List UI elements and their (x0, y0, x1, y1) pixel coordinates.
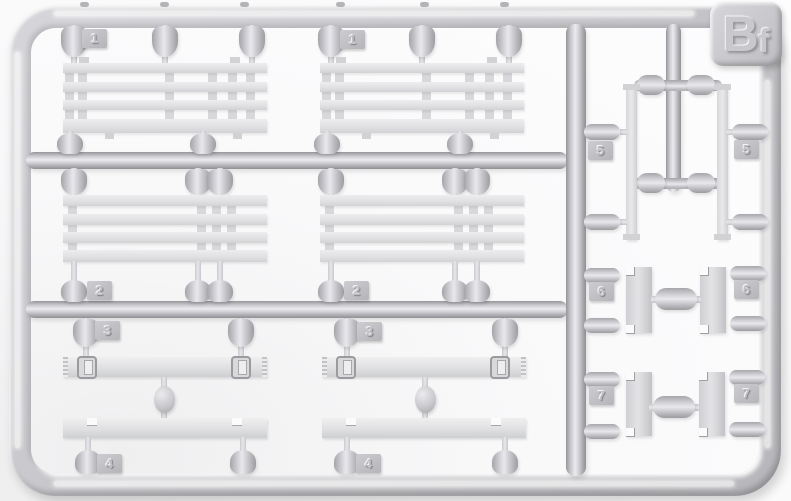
runner-rail-upper (26, 152, 568, 169)
sprue-gate-capsule (732, 124, 768, 140)
part-2-slat (320, 250, 524, 262)
part-5-strip-left (626, 84, 637, 240)
runner-feed-vertical (666, 24, 681, 192)
part-2-slat (63, 232, 267, 243)
part-1-slat (63, 119, 267, 133)
sprue-gate-capsule (584, 372, 620, 387)
part-number-text: 4 (365, 456, 372, 471)
gate-stem (620, 219, 627, 225)
part-6-bracket-left (626, 267, 652, 333)
sprue-photo: 1 1 2 2 3 3 4 4 5 5 6 6 7 7 B f (0, 0, 791, 501)
part-2-slat (63, 250, 267, 262)
part-7-notch (626, 372, 635, 381)
part-5-flange (714, 84, 731, 90)
part-3-buckle-slot (497, 360, 506, 375)
part-5-flange (623, 234, 640, 240)
sprue-gate-pin (61, 169, 87, 195)
part-number-text: 6 (743, 282, 750, 297)
part-1-slatted-frame-left (63, 63, 267, 73)
sprue-gate-pin (207, 169, 233, 195)
part-tag-7-left: 7 (589, 386, 614, 405)
part-6-notch (626, 325, 635, 334)
part-3-buckle-slot (238, 360, 247, 375)
frame-ejector-nub (160, 2, 169, 7)
part-1-slat (63, 82, 267, 92)
part-number-text: 3 (366, 324, 373, 339)
part-tag-2-right: 2 (344, 281, 369, 300)
runner-divider-vertical (566, 24, 586, 476)
part-number-text: 5 (597, 143, 604, 158)
sprue-gate-pin (464, 280, 490, 302)
frame-ejector-nub (80, 2, 89, 7)
part-number-text: 3 (104, 323, 111, 338)
part-tag-4-right: 4 (356, 454, 381, 473)
part-6-notch (700, 325, 709, 334)
sprue-gate-pin (492, 450, 518, 474)
part-2-slat (320, 232, 524, 243)
part-tag-1-left: 1 (82, 29, 107, 48)
part-1-tab (362, 133, 371, 139)
sprue-id-letter-sub: f (759, 24, 770, 57)
part-tag-3-left: 3 (95, 321, 120, 340)
part-tag-5-right: 5 (734, 140, 759, 159)
gate-stem (620, 129, 627, 135)
part-5-flange (714, 234, 731, 240)
sprue-gate-capsule (637, 173, 665, 193)
sprue-gate-capsule (687, 75, 715, 95)
sprue-gate-capsule (584, 124, 620, 140)
part-number-text: 1 (349, 32, 356, 47)
sprue-gate-capsule (584, 214, 620, 230)
part-number-text: 7 (598, 388, 605, 403)
part-3-serration (521, 357, 526, 377)
sprue-gate-pin (447, 133, 473, 154)
part-4-notch (346, 418, 356, 426)
sprue-gate-capsule (584, 424, 620, 439)
part-5-flange (623, 84, 640, 90)
frame-highlight-left (15, 52, 20, 448)
gate-stem (195, 261, 201, 282)
part-tag-4-left: 4 (97, 454, 122, 473)
sprue-gate-pin (207, 280, 233, 302)
part-7-notch (626, 428, 635, 437)
sprue-gate-capsule (729, 422, 765, 437)
part-1-tab (105, 133, 114, 139)
part-number-text: 6 (598, 284, 605, 299)
part-number-text: 7 (743, 386, 750, 401)
runner-rail-lower (26, 301, 568, 318)
sprue-gate-pin (230, 450, 256, 474)
sprue-gate-pin (190, 133, 216, 154)
sprue-gate-pin (318, 169, 344, 195)
part-number-text: 4 (106, 456, 113, 471)
part-1-slatted-frame-right (320, 63, 524, 73)
part-tag-1-right: 1 (340, 30, 365, 49)
sprue-gate-capsule (732, 214, 768, 230)
frame-ejector-nub (336, 2, 345, 7)
part-tag-6-left: 6 (589, 282, 614, 301)
sprue-gate-pin (492, 319, 518, 347)
frame-highlight-bottom (54, 481, 734, 486)
gate-stem (71, 261, 77, 282)
frame-ejector-nub (500, 2, 509, 7)
sprue-gate-capsule (584, 318, 620, 333)
part-1-tab (490, 133, 499, 139)
gate-stem (328, 261, 334, 282)
part-number-text: 5 (743, 142, 750, 157)
part-3-buckle-slot (343, 360, 352, 375)
part-1-slat (320, 100, 524, 110)
part-7-bracket-right (699, 372, 725, 436)
part-2-slat (63, 214, 267, 225)
part-tag-6-right: 6 (734, 280, 759, 299)
part-7-notch (699, 372, 708, 381)
part-4-notch (232, 418, 242, 426)
sprue-gate-pin (239, 26, 265, 57)
part-knob-right (415, 386, 436, 413)
sprue-gate-capsule (730, 266, 766, 281)
part-tag-2-left: 2 (87, 281, 112, 300)
gate-stem (474, 261, 480, 282)
part-6-notch (700, 267, 709, 276)
sprue-gate-capsule (730, 316, 766, 331)
part-3-serration (262, 357, 267, 377)
part-6-notch (626, 267, 635, 276)
frame-highlight-top (54, 11, 694, 16)
part-tag-3-right: 3 (357, 322, 382, 341)
sprue-gate-pin (57, 133, 83, 154)
sprue-gate-capsule (729, 370, 765, 385)
part-number-text: 2 (96, 283, 103, 298)
part-2-slat (320, 214, 524, 225)
part-4-notch (491, 418, 501, 426)
gate-stem (217, 261, 223, 282)
sprue-gate-capsule (687, 173, 715, 193)
part-number-text: 2 (353, 283, 360, 298)
sprue-gate-pin (409, 26, 435, 57)
part-2-slatted-frame-right (320, 195, 524, 206)
part-tag-7-right: 7 (734, 384, 759, 403)
part-3-serration (63, 357, 68, 377)
sprue-gate-capsule (637, 75, 665, 95)
frame-ejector-nub (240, 2, 249, 7)
sprue-gate-pin (318, 280, 344, 302)
sprue-gate-pin (496, 26, 522, 57)
part-6-bracket-right (700, 267, 726, 333)
part-3-serration (322, 357, 327, 377)
sprue-gate-pin (314, 133, 340, 154)
part-tag-5-left: 5 (588, 141, 613, 160)
frame-ejector-nub (420, 2, 429, 7)
part-1-slat (320, 82, 524, 92)
sprue-gate-capsule (584, 268, 620, 283)
sprue-gate-pin (152, 26, 178, 57)
sprue-gate-pin (61, 280, 87, 302)
part-7-notch (699, 428, 708, 437)
part-1-slat (63, 100, 267, 110)
part-2-slatted-frame-left (63, 195, 267, 206)
part-knob-left (154, 386, 175, 413)
sprue-id-letter-main: B (722, 9, 758, 59)
sprue-id-tab: B f (710, 2, 782, 66)
sprue-gate-pin (464, 169, 490, 195)
sprue-gate-capsule (655, 288, 697, 310)
gate-stem (452, 261, 458, 282)
part-1-tab (233, 133, 242, 139)
part-number-text: 1 (91, 31, 98, 46)
part-1-slat (320, 119, 524, 133)
part-5-strip-right (717, 84, 728, 240)
sprue-gate-capsule (653, 396, 695, 418)
part-4-notch (87, 418, 97, 426)
sprue-gate-pin (228, 319, 254, 347)
part-3-buckle-slot (84, 360, 93, 375)
